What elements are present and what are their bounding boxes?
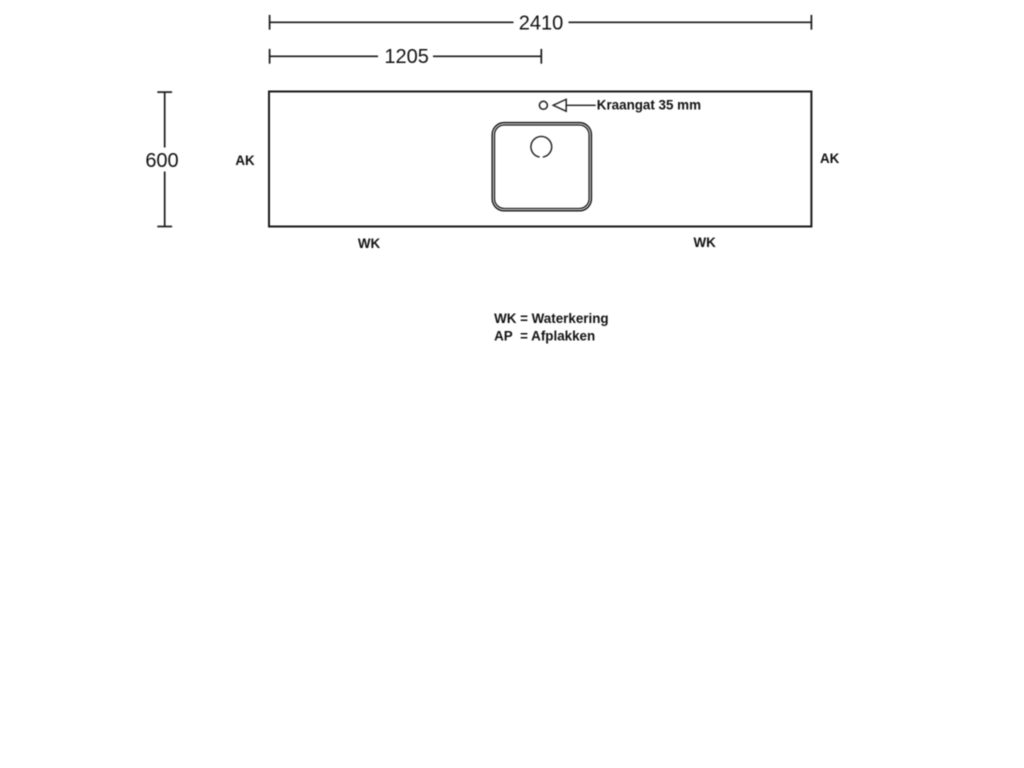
svg-text:WK = Waterkering: WK = Waterkering [494, 311, 608, 326]
svg-text:2410: 2410 [519, 12, 564, 34]
svg-text:WK: WK [694, 235, 717, 250]
svg-text:600: 600 [145, 150, 178, 172]
svg-text:1205: 1205 [384, 46, 429, 68]
svg-text:AK: AK [820, 151, 840, 166]
svg-text:WK: WK [358, 236, 381, 251]
svg-text:AP = Afplakken: AP = Afplakken [494, 329, 595, 344]
svg-text:AK: AK [235, 153, 255, 168]
svg-text:Kraangat 35 mm: Kraangat 35 mm [597, 97, 701, 112]
